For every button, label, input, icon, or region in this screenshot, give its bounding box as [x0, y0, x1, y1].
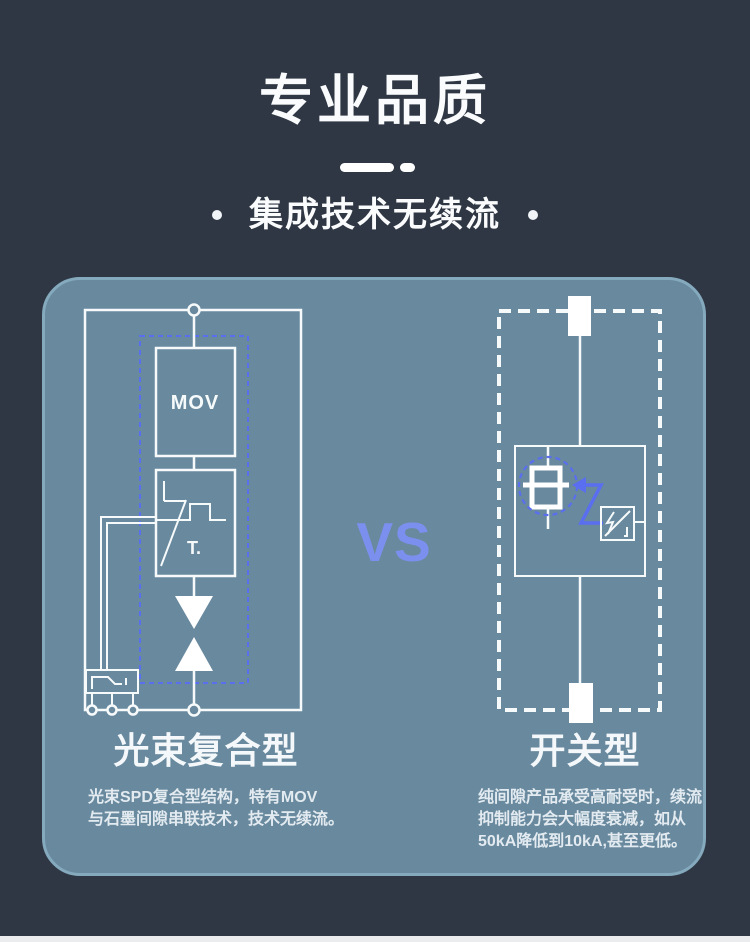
right-column-heading: 开关型 [475, 729, 695, 773]
surge-impulse-icon [601, 507, 645, 540]
divider-long-bar [340, 163, 394, 172]
comparison-panel: MOV T. [42, 277, 706, 876]
trigger-bus-lines [101, 517, 156, 670]
subtitle: 集成技术无续流 [0, 194, 750, 236]
bottom-terminal-block [569, 683, 593, 723]
title-divider [340, 163, 420, 172]
trigger-switch-box [156, 470, 235, 576]
page-title: 专业品质 [0, 70, 750, 132]
right-column-description: 纯间隙产品承受高耐受时，续流 抑制能力会大幅度衰减，如从 50kA降低到10kA… [478, 787, 718, 853]
mov-label: MOV [171, 392, 220, 414]
divider-short-bar [400, 163, 415, 172]
left-column-description: 光束SPD复合型结构，特有MOV 与石墨间隙串联技术，技术无续流。 [88, 787, 348, 831]
pulse-waveform-icon [156, 504, 226, 520]
vs-label: VS [339, 510, 449, 574]
subtitle-text: 集成技术无续流 [249, 194, 501, 236]
switch-type-circuit-diagram [493, 291, 668, 733]
graphite-gap-diode-pair-icon [175, 596, 213, 671]
top-terminal-circle-icon [189, 305, 200, 316]
zigzag-arrow-icon [572, 477, 603, 523]
thermal-disconnector-icon [86, 670, 138, 710]
spark-gap-icon [523, 446, 569, 529]
top-terminal-block [568, 296, 591, 336]
left-column-heading: 光束复合型 [86, 729, 326, 773]
bottom-page-edge [0, 936, 750, 942]
left-dot-icon [212, 210, 222, 220]
beam-composite-circuit-diagram: MOV T. [78, 298, 313, 718]
right-dot-icon [528, 210, 538, 220]
trigger-label: T. [187, 538, 201, 558]
